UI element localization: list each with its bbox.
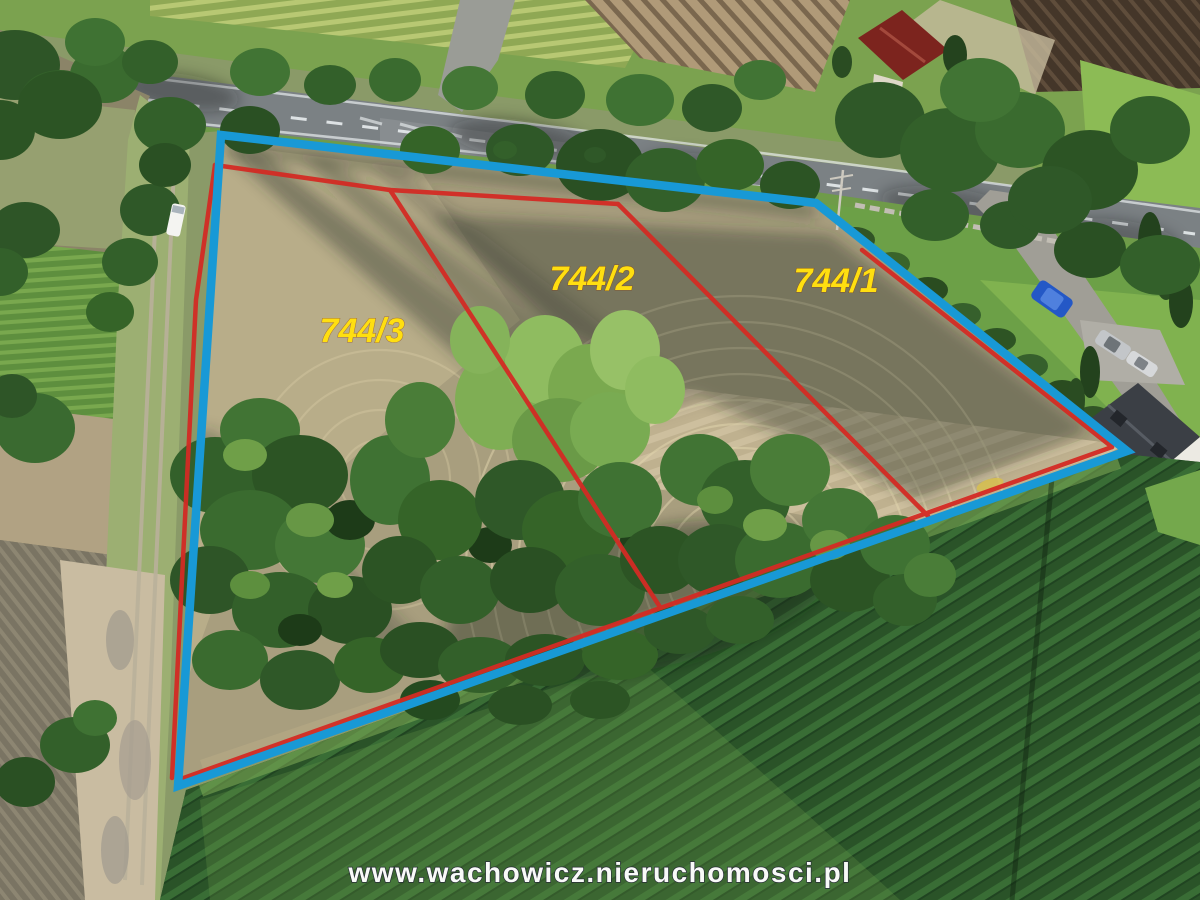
watermark-url: www.wachowicz.nieruchomosci.pl: [348, 857, 852, 888]
aerial-parcel-photo: 744/3 744/2 744/1 www.wachowicz.nierucho…: [0, 0, 1200, 900]
label-744-1: 744/1: [793, 262, 878, 300]
label-744-3: 744/3: [319, 312, 404, 350]
label-744-2: 744/2: [549, 260, 634, 298]
